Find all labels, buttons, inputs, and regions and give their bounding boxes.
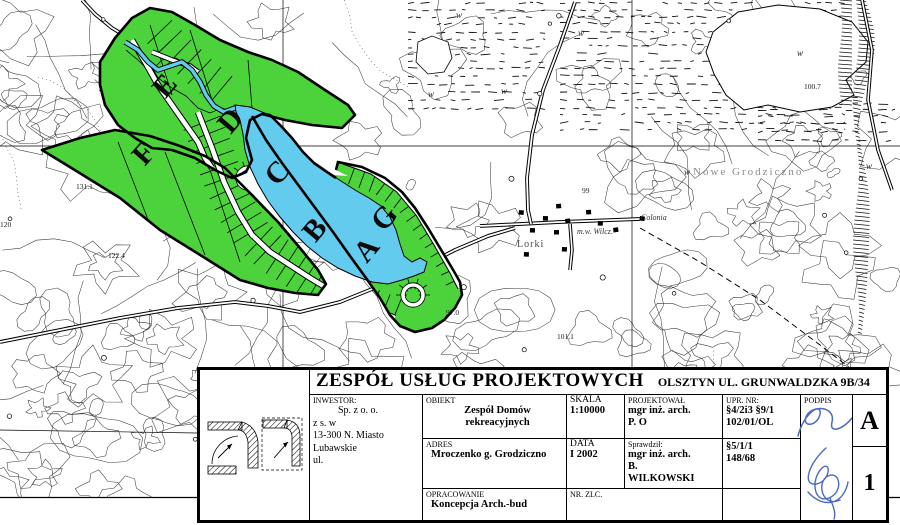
investor-line: z s. w — [310, 418, 422, 431]
investor-line: 13-300 N. Miasto — [310, 430, 422, 443]
order-no-label: NR. ZLC. — [567, 489, 722, 499]
license-no-label: UPR. NR: — [723, 395, 800, 405]
elaboration-cell: OPRACOWANIE Koncepcja Arch.-bud — [422, 488, 566, 520]
checked-value: B. — [625, 461, 722, 473]
scale-cell: SKALA 1:10000 — [566, 395, 624, 438]
scale-value: 1:10000 — [567, 405, 624, 417]
object-value: Zespół Domów — [423, 405, 566, 417]
address-value: Mroczenko g. Grodziczno — [423, 449, 566, 461]
scale-label: SKALA — [567, 395, 624, 405]
designed-cell: PROJEKTOWAŁ mgr inż. arch. P. O — [624, 395, 722, 438]
address-cell: ADRES Mroczenko g. Grodziczno — [422, 438, 566, 488]
investor-line: Sp. z o. o. — [310, 405, 422, 418]
investor-cell: INWESTOR: Sp. z o. o. z s. w 13-300 N. M… — [310, 395, 422, 520]
license-no-value: 102/01/OL — [723, 417, 800, 429]
license-no-cell: UPR. NR: §4/2i3 §9/1 102/01/OL — [722, 395, 800, 438]
company-name: ZESPÓŁ USŁUG PROJEKTOWYCH — [316, 370, 644, 391]
object-cell: OBIEKT Zespół Domów rekreacyjnych — [422, 395, 566, 438]
date-label: DATA — [567, 439, 624, 449]
title-header: ZESPÓŁ USŁUG PROJEKTOWYCH OLSZTYN UL. GR… — [310, 370, 886, 395]
license-no-value: 148/68 — [723, 453, 800, 465]
road-curve-logo-icon — [206, 406, 306, 492]
investor-line: Lubawskie — [310, 443, 422, 456]
date-value: I 2002 — [567, 449, 624, 461]
address-label: ADRES — [423, 439, 566, 449]
designed-label: PROJEKTOWAŁ — [625, 395, 722, 405]
date-cell: DATA I 2002 — [566, 438, 624, 488]
title-block: ZESPÓŁ USŁUG PROJEKTOWYCH OLSZTYN UL. GR… — [197, 367, 889, 523]
object-label: OBIEKT — [423, 395, 566, 405]
company-address: OLSZTYN UL. GRUNWALDZKA 9B/34 — [658, 375, 870, 389]
checked-label: Sprawdził: — [625, 439, 722, 449]
designed-value: mgr inż. arch. — [625, 405, 722, 417]
drawing-sheet: ABCDEFGLorkim.w. Wilcz.ColoniaNowe Grodz… — [0, 0, 900, 525]
designed-value: P. O — [625, 417, 722, 429]
signature-cell: PODPIS — [800, 395, 852, 520]
object-value: rekreacyjnych — [423, 417, 566, 429]
revision-letter: A — [852, 395, 886, 446]
sheet-number: 1 — [852, 446, 886, 520]
license-no-empty-cell — [722, 488, 800, 520]
checked-value: WILKOWSKI — [625, 473, 722, 485]
order-no-cell: NR. ZLC. — [566, 488, 722, 520]
signature-label: PODPIS — [801, 395, 852, 405]
logo-cell — [200, 370, 310, 520]
investor-line: ul. — [310, 455, 422, 468]
elaboration-value: Koncepcja Arch.-bud — [423, 499, 566, 511]
license-no-value: §4/2i3 §9/1 — [723, 405, 800, 417]
checked-cell: Sprawdził: mgr inż. arch. B. WILKOWSKI — [624, 438, 722, 488]
license-no-value: §5/1/1 — [723, 439, 800, 453]
elaboration-label: OPRACOWANIE — [423, 489, 566, 499]
license-no-cell-2: §5/1/1 148/68 — [722, 438, 800, 488]
checked-value: mgr inż. arch. — [625, 449, 722, 461]
investor-label: INWESTOR: — [310, 395, 422, 405]
